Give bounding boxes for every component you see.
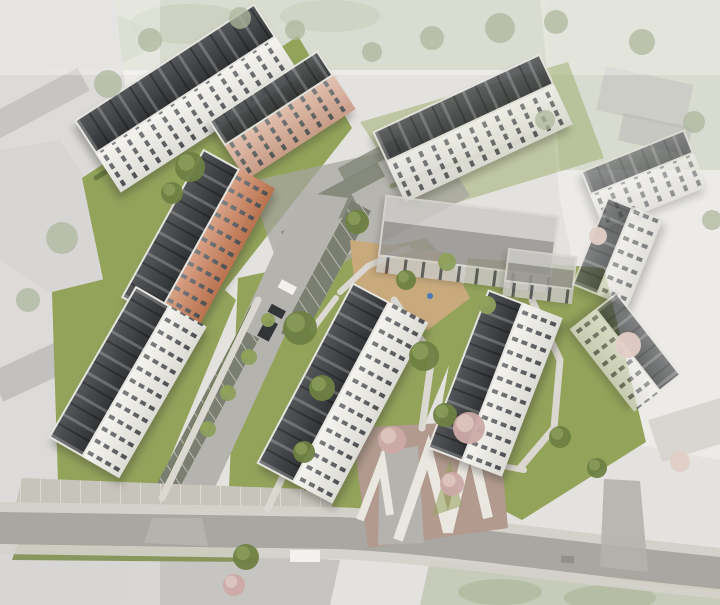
existing-building-wing <box>502 248 577 304</box>
street-junction-west <box>144 518 208 546</box>
entry-drive-east <box>600 479 648 572</box>
aerial-rendering <box>0 0 720 605</box>
context-tree-mass <box>458 579 542 605</box>
truck <box>290 550 320 562</box>
play-equipment <box>427 293 433 299</box>
car-on-road <box>561 556 574 564</box>
